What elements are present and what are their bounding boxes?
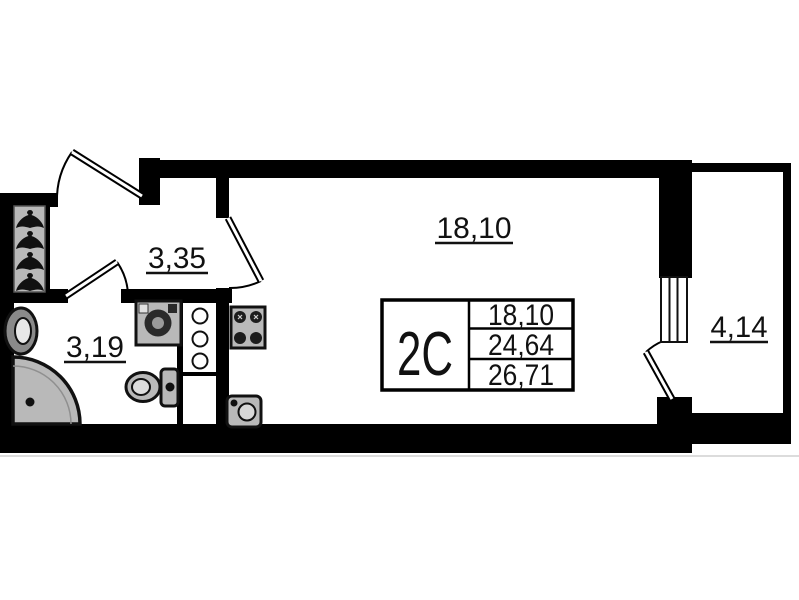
vent-hole [193,332,208,347]
door-leaf [228,218,261,281]
vent-hole [193,354,208,369]
wall-segment [139,158,160,205]
toilet-icon [126,369,178,406]
toilet-flush-button [166,383,175,392]
washer-drum-center [152,317,164,329]
area-value-row-2: 24,64 [488,329,554,362]
shower-icon [13,357,80,424]
wall-segment [0,424,692,453]
sink-tap [231,400,238,407]
shower-drain [26,398,35,407]
door-leaf [72,152,142,196]
main-room-door [228,218,261,288]
wall-segment [687,413,791,444]
room-area-label-bathroom: 3,19 [66,331,124,364]
vent-hole [193,309,208,324]
toilet-bowl-inner [132,379,150,395]
entrance-door [57,152,142,202]
wall-segment [659,171,692,278]
door-leaf [66,262,117,296]
washing-machine-icon [136,301,181,345]
burner [234,332,246,344]
balcony-window-icon [661,277,687,342]
bathroom-door [66,262,128,298]
wall-segment [216,172,229,218]
door-swing-arc [229,281,261,288]
washbasin-icon [5,308,37,354]
balcony-door [646,341,672,399]
burner [250,332,262,344]
wall-segment [686,163,786,172]
unit-type-label: 2C [397,320,453,389]
washer-panel [168,304,177,313]
vent-duct-icon [193,309,208,369]
door-leaf [646,352,672,399]
unit-info-table: 2C 18,10 24,64 26,71 [382,299,573,392]
room-area-label-main: 18,10 [437,212,512,245]
washer-panel [139,304,148,313]
coat-hooks-icon [14,206,45,292]
kitchen-sink-icon [227,396,261,427]
floor-plan: 18,10 3,35 3,19 4,14 2C 18,10 24,64 26,7… [0,0,799,600]
room-area-label-balcony: 4,14 [711,311,768,344]
door-swing-arc [57,152,72,202]
area-value-row-1: 18,10 [488,299,554,332]
wall-segment [783,163,791,444]
basin-inner [15,318,31,344]
wall-segment [183,372,216,376]
sink-basin [239,404,256,421]
area-value-row-3: 26,71 [488,359,554,392]
stove-icon [231,307,265,348]
floor-plan-drawing: 18,10 3,35 3,19 4,14 2C 18,10 24,64 26,7… [0,0,799,600]
room-area-label-hallway: 3,35 [148,242,206,275]
window-frame [661,277,687,342]
